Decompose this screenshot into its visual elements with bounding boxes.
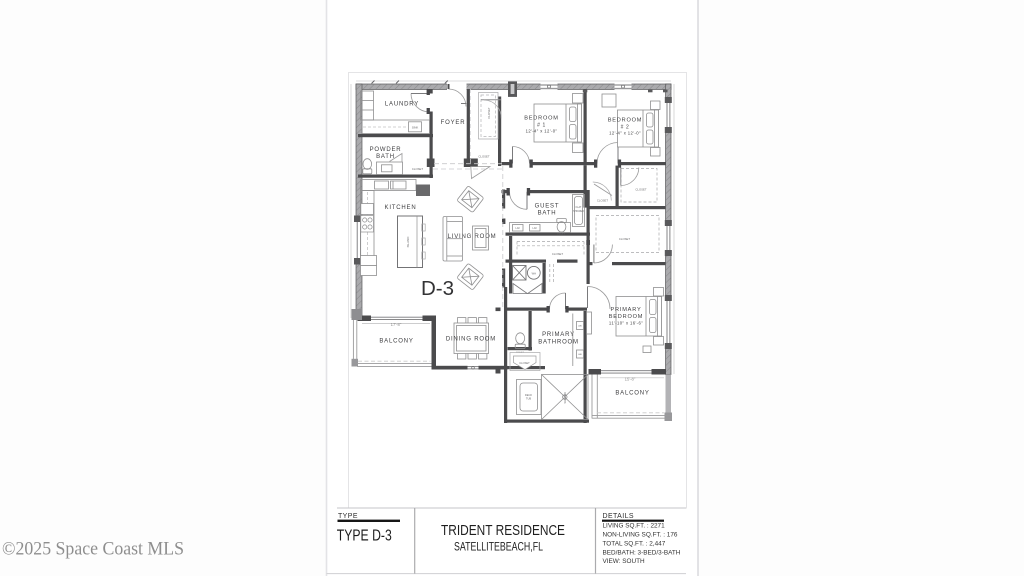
svg-text:CLOSET: CLOSET: [519, 361, 530, 365]
svg-text:LAV: LAV: [516, 227, 521, 230]
svg-text:ISLAND: ISLAND: [406, 236, 410, 248]
svg-text:15'-8": 15'-8": [625, 376, 636, 381]
svg-text:WH: WH: [532, 271, 536, 275]
svg-text:CLOSET: CLOSET: [619, 237, 630, 241]
svg-text:SHOWER: SHOWER: [573, 210, 584, 213]
svg-text:BEDROOM: BEDROOM: [524, 116, 559, 122]
svg-text:CLOSET: CLOSET: [412, 167, 423, 171]
svg-text:LAUNDRY: LAUNDRY: [385, 102, 419, 108]
svg-text:TUB: TUB: [526, 397, 531, 401]
svg-text:DECK: DECK: [525, 393, 532, 397]
svg-text:BALCONY: BALCONY: [379, 339, 413, 345]
svg-text:LIVING SQ.FT. : 2271: LIVING SQ.FT. : 2271: [603, 523, 666, 530]
svg-text:11'-10" x 16'-6": 11'-10" x 16'-6": [609, 321, 643, 326]
svg-text:LIVING ROOM: LIVING ROOM: [448, 234, 497, 240]
svg-text:12'-4" x 12'-0": 12'-4" x 12'-0": [609, 131, 641, 136]
svg-text:CLOSET: CLOSET: [635, 188, 646, 192]
svg-text:PRIMARY: PRIMARY: [611, 307, 642, 313]
svg-text:BATH: BATH: [376, 154, 395, 160]
svg-text:CLOSET: CLOSET: [552, 252, 563, 256]
svg-text:BALCONY: BALCONY: [615, 391, 649, 397]
svg-text:GUEST: GUEST: [535, 204, 560, 210]
svg-text:12'-4" x 12'-0": 12'-4" x 12'-0": [526, 129, 558, 134]
svg-text:SINK: SINK: [412, 126, 419, 130]
svg-text:BED/BATH: 3-BED/3-BATH: BED/BATH: 3-BED/3-BATH: [603, 550, 681, 557]
svg-text:PRIMARY: PRIMARY: [542, 332, 575, 338]
svg-text:LAV: LAV: [533, 227, 538, 230]
svg-text:BATH: BATH: [538, 211, 557, 217]
svg-text:D-3: D-3: [421, 277, 454, 300]
svg-text:SHOWER: SHOWER: [563, 392, 567, 404]
svg-text:DINING ROOM: DINING ROOM: [446, 337, 496, 343]
svg-text:VIEW: SOUTH: VIEW: SOUTH: [603, 558, 646, 565]
svg-text:KITCHEN: KITCHEN: [385, 205, 417, 211]
svg-text:BEDROOM: BEDROOM: [608, 118, 643, 124]
svg-text:FLAT: FLAT: [576, 206, 582, 209]
svg-text:DETAILS: DETAILS: [603, 513, 634, 520]
svg-text:TRIDENT RESIDENCE: TRIDENT RESIDENCE: [441, 522, 565, 539]
svg-text:CLOSET: CLOSET: [478, 155, 489, 159]
svg-text:CLOSET: CLOSET: [487, 107, 491, 118]
svg-text:LAV: LAV: [578, 353, 583, 356]
svg-text:TOTAL SQ.FT. : 2,447: TOTAL SQ.FT. : 2,447: [603, 541, 666, 548]
svg-text:CLOSET: CLOSET: [597, 199, 608, 203]
svg-text:TYPE D-3: TYPE D-3: [337, 528, 392, 545]
svg-text:TOILET: TOILET: [557, 234, 565, 236]
svg-text:NON-LIVING SQ.FT. : 176: NON-LIVING SQ.FT. : 176: [603, 532, 678, 539]
svg-text:LAV: LAV: [578, 324, 583, 327]
svg-text:FOYER: FOYER: [441, 120, 466, 126]
svg-text:©2025 Space Coast MLS: ©2025 Space Coast MLS: [2, 539, 184, 560]
svg-text:SATELLITEBEACH,FL: SATELLITEBEACH,FL: [454, 540, 543, 554]
svg-text:BEDROOM: BEDROOM: [609, 314, 644, 320]
svg-text:17'-8": 17'-8": [391, 322, 402, 327]
svg-text:POWDER: POWDER: [370, 147, 402, 153]
svg-text:TYPE: TYPE: [338, 513, 358, 520]
